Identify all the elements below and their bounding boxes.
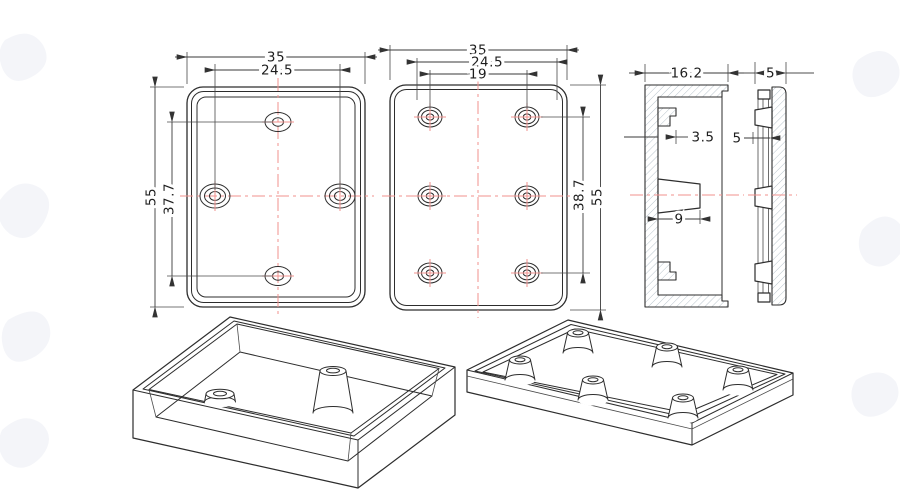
lid-plate-section (772, 87, 786, 305)
boss-hole (511, 259, 543, 287)
watermark-right (851, 51, 900, 417)
dim-label-38-7: 38.7 (572, 179, 588, 211)
dim-label-9: 9 (674, 212, 683, 228)
boss-middle (755, 186, 772, 209)
view-lid-inner-face: 35 24.5 19 38.7 (378, 43, 606, 319)
view-lid-outer-face: 35 24.5 55 37.7 (144, 50, 378, 317)
technical-drawing-sheet: 35 24.5 55 37.7 (0, 0, 900, 500)
outline-outer (187, 87, 365, 307)
end-cap-top (758, 90, 770, 99)
dim-label-19: 19 (469, 67, 487, 83)
lid-boss (578, 376, 608, 406)
end-cap-bottom (758, 293, 770, 302)
dim-label-16-2: 16.2 (670, 66, 702, 82)
dim-label-55: 55 (590, 188, 606, 206)
clip-bottom (658, 262, 676, 280)
lid-boss (563, 329, 593, 359)
dimension-row-span: 38.7 (541, 117, 590, 273)
outline-step (192, 92, 361, 303)
lid-boss (723, 366, 753, 396)
tall-boss (313, 367, 353, 420)
dim-label-3-5: 3.5 (692, 130, 715, 146)
dimension-depth: 16.2 (629, 64, 744, 82)
lid-boss (652, 343, 682, 373)
iso-view-tray (133, 317, 455, 488)
dimension-thickness: 5 (739, 62, 814, 84)
dim-label-24-5: 24.5 (261, 63, 293, 79)
small-boss (205, 389, 236, 407)
dimension-clip-depth: 3.5 (624, 130, 714, 146)
boss-hole (414, 182, 446, 210)
boss-top (755, 107, 772, 128)
watermark-left (0, 34, 50, 468)
section-view-box: 16.2 3.5 9 (624, 64, 744, 307)
lid-boss (505, 356, 535, 386)
lid-boss (668, 394, 698, 424)
dim-label-55: 55 (144, 188, 160, 206)
center-boss-section (658, 179, 700, 213)
dim-label-5-thickness: 5 (766, 66, 775, 82)
dim-label-5-boss: 5 (732, 131, 741, 147)
boss-hole (414, 259, 446, 287)
boss-bottom (755, 261, 772, 284)
boss-hole (511, 182, 543, 210)
iso-view-lid (467, 320, 793, 445)
dimension-boss-height: 5 (732, 131, 770, 147)
drawing-svg: 35 24.5 55 37.7 (0, 0, 900, 500)
section-view-lid: 5 5 (732, 62, 814, 305)
tray-outer-body (133, 317, 455, 488)
dim-label-37-7: 37.7 (162, 183, 178, 215)
dimension-hole-span-v: 37.7 (162, 122, 273, 276)
clip-top (658, 108, 676, 126)
